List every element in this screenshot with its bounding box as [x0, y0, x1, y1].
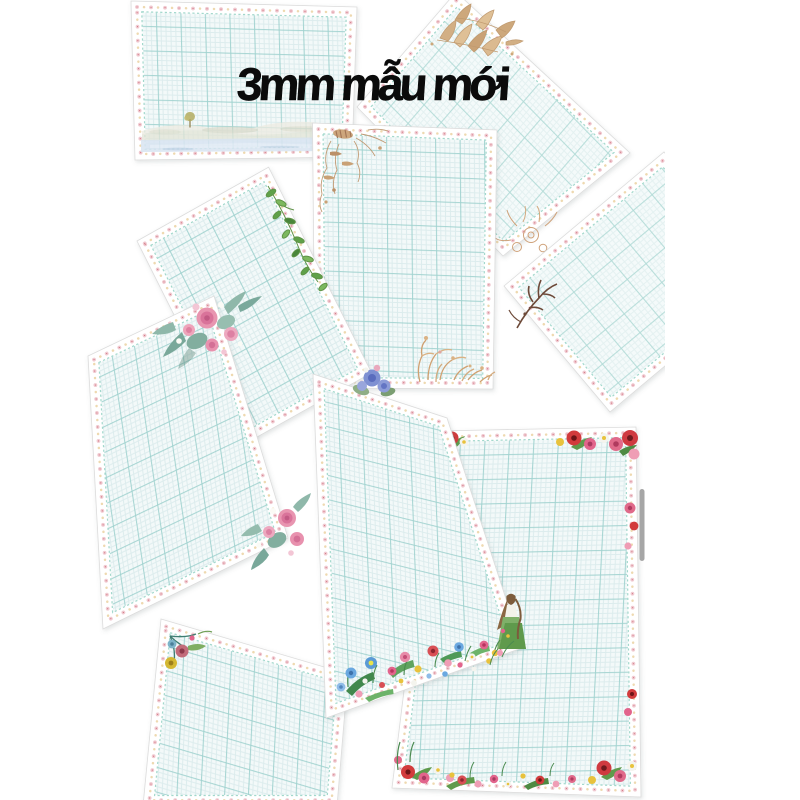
svg-text:3mm mẫu mới: 3mm mẫu mới — [235, 58, 510, 110]
